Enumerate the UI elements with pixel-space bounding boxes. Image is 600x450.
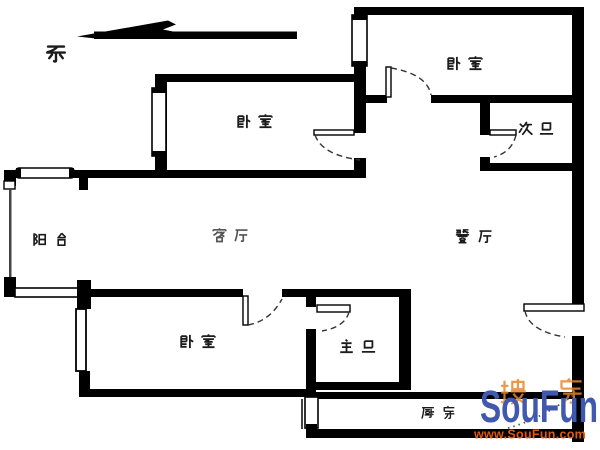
svg-text:SouFun: SouFun bbox=[480, 383, 598, 433]
svg-text:www.SouFun.com: www.SouFun.com bbox=[473, 428, 586, 442]
